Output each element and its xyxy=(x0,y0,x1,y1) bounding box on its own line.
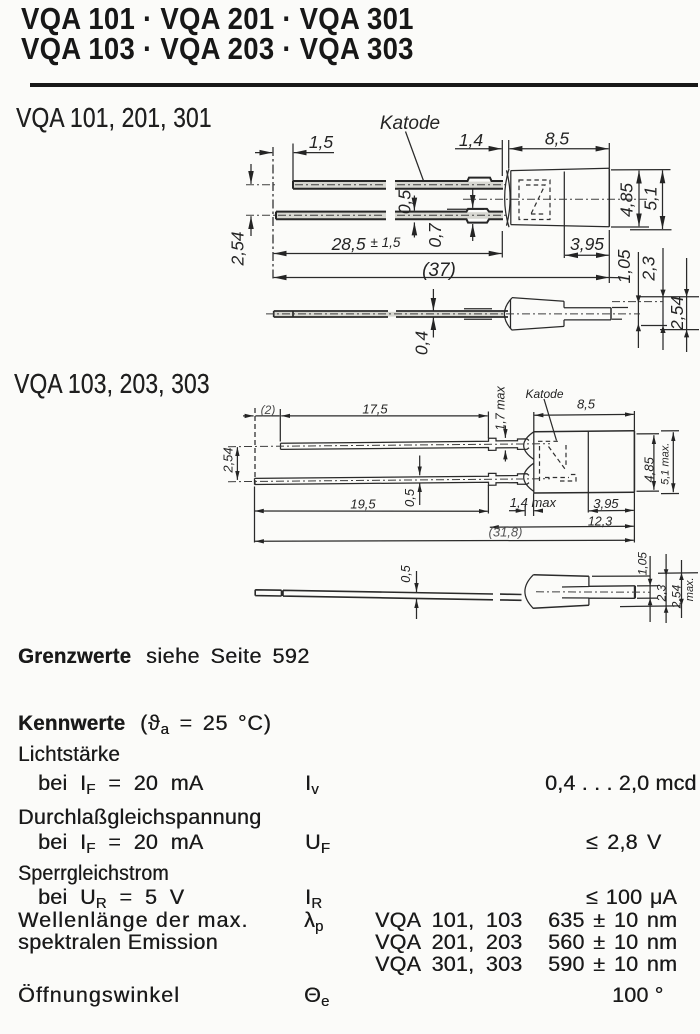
svg-text:(2): (2) xyxy=(261,403,276,417)
svg-text:1,5: 1,5 xyxy=(309,132,334,152)
svg-text:1,7 max: 1,7 max xyxy=(494,386,508,431)
svg-text:1,05: 1,05 xyxy=(635,552,649,576)
svg-text:2,54: 2,54 xyxy=(221,447,236,473)
svg-text:max.: max. xyxy=(684,577,696,601)
svg-text:0,5: 0,5 xyxy=(402,488,417,507)
svg-text:Katode: Katode xyxy=(380,113,440,134)
svg-text:4,85: 4,85 xyxy=(642,456,657,482)
svg-text:0,5: 0,5 xyxy=(395,190,415,215)
svg-text:5,1: 5,1 xyxy=(641,186,661,210)
svg-text:3,95: 3,95 xyxy=(593,496,619,511)
svg-text:1,05: 1,05 xyxy=(614,249,634,283)
svg-text:Katode: Katode xyxy=(525,387,563,401)
svg-text:2,3: 2,3 xyxy=(654,584,668,602)
svg-text:2,54: 2,54 xyxy=(669,584,683,609)
svg-text:2,54: 2,54 xyxy=(667,296,687,331)
svg-text:17,5: 17,5 xyxy=(362,402,388,417)
svg-text:1,4 max: 1,4 max xyxy=(510,495,557,510)
svg-text:5,1 max.: 5,1 max. xyxy=(659,443,671,485)
svg-text:2,3: 2,3 xyxy=(639,256,659,282)
svg-text:8,5: 8,5 xyxy=(577,396,596,411)
svg-text:0,7: 0,7 xyxy=(425,222,445,248)
svg-text:1,4: 1,4 xyxy=(459,130,484,150)
svg-text:(31,8): (31,8) xyxy=(489,525,523,540)
svg-text:0,4: 0,4 xyxy=(412,331,432,356)
svg-text:8,5: 8,5 xyxy=(545,129,570,149)
svg-text:28,5 ± 1,5: 28,5 ± 1,5 xyxy=(331,234,401,254)
svg-text:2,54: 2,54 xyxy=(228,231,248,266)
svg-text:19,5: 19,5 xyxy=(350,497,376,512)
svg-text:4,85: 4,85 xyxy=(617,183,637,217)
svg-text:0,5: 0,5 xyxy=(399,565,413,582)
svg-text:3,95: 3,95 xyxy=(570,234,604,254)
svg-text:12,3: 12,3 xyxy=(588,515,612,529)
svg-text:(37): (37) xyxy=(422,260,456,281)
